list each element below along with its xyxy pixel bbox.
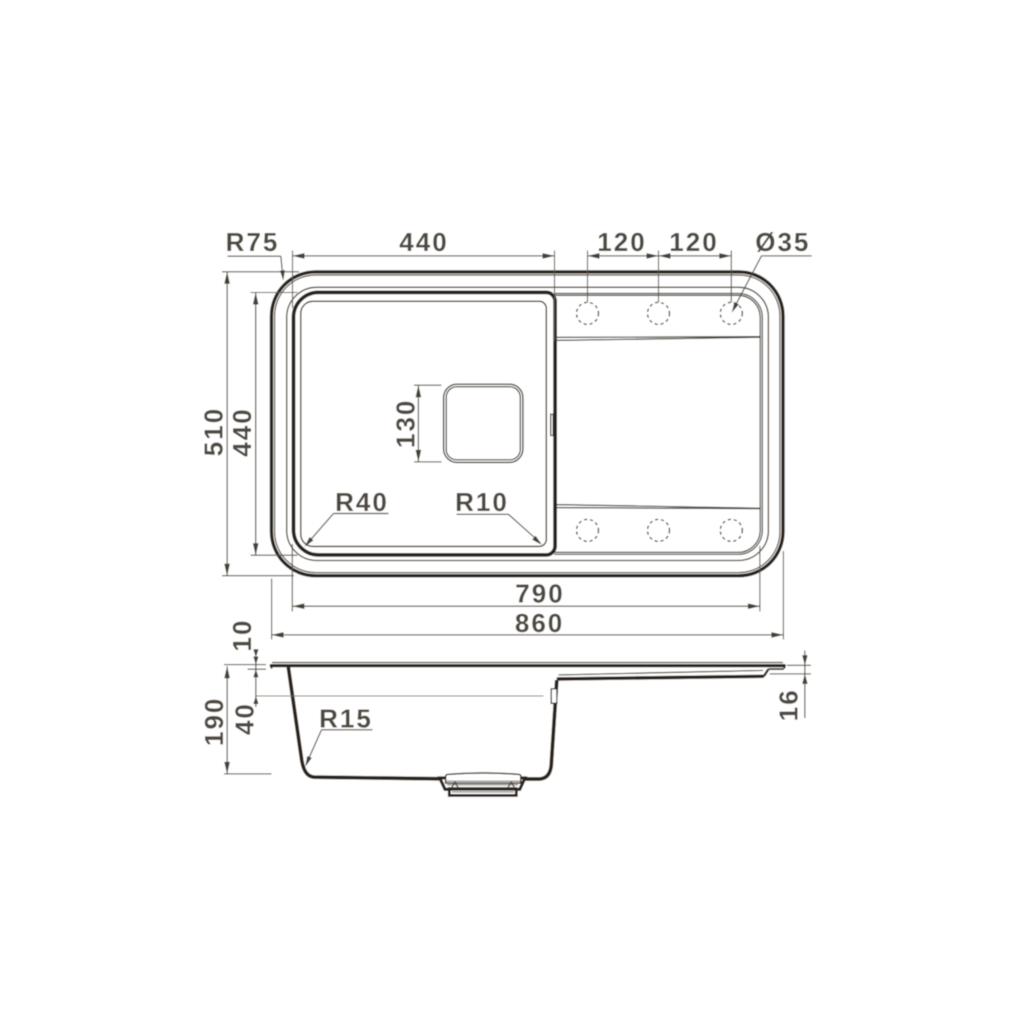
svg-text:440: 440 <box>227 407 257 456</box>
svg-text:R40: R40 <box>335 487 389 517</box>
svg-text:120: 120 <box>597 227 646 257</box>
svg-text:Ø35: Ø35 <box>755 227 810 257</box>
svg-text:120: 120 <box>669 227 718 257</box>
svg-text:440: 440 <box>399 227 448 257</box>
svg-text:R75: R75 <box>226 227 280 257</box>
svg-text:190: 190 <box>199 697 229 746</box>
svg-text:16: 16 <box>774 688 804 721</box>
svg-text:40: 40 <box>230 702 260 735</box>
svg-text:860: 860 <box>515 608 564 638</box>
svg-text:130: 130 <box>391 399 421 448</box>
svg-text:510: 510 <box>198 407 228 456</box>
svg-text:10: 10 <box>227 619 257 652</box>
svg-text:R10: R10 <box>455 487 509 517</box>
svg-text:R15: R15 <box>319 704 373 734</box>
svg-text:790: 790 <box>515 579 564 609</box>
